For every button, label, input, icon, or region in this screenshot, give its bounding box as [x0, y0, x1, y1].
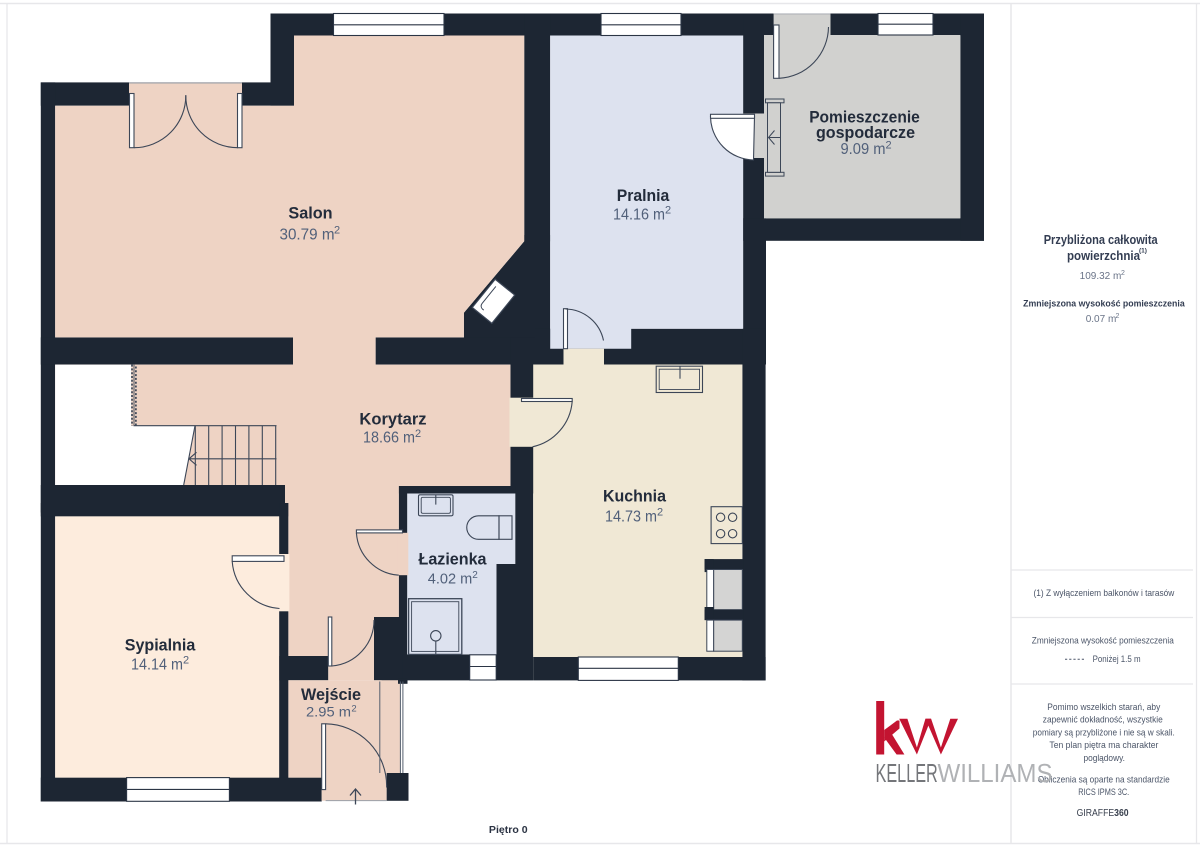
svg-text:2: 2	[1121, 270, 1125, 277]
svg-text:2: 2	[885, 139, 891, 151]
svg-text:KELLERWILLIAMS: KELLERWILLIAMS	[876, 758, 1053, 788]
svg-text:14.73 m: 14.73 m	[605, 509, 657, 526]
svg-text:(1): (1)	[1139, 248, 1147, 255]
svg-text:Obliczenia są oparte na standa: Obliczenia są oparte na standardzie	[1038, 774, 1170, 785]
svg-text:Korytarz: Korytarz	[359, 410, 426, 429]
svg-text:4.02 m: 4.02 m	[428, 572, 473, 588]
svg-text:poglądowy.: poglądowy.	[1083, 753, 1125, 764]
svg-text:2: 2	[334, 225, 340, 237]
svg-text:Łazienka: Łazienka	[419, 550, 488, 569]
svg-text:2: 2	[351, 704, 356, 715]
svg-text:Sypialnia: Sypialnia	[125, 636, 196, 655]
svg-text:Zmniejszona wysokość pomieszcz: Zmniejszona wysokość pomieszczenia	[1023, 299, 1186, 309]
svg-text:14.14 m: 14.14 m	[131, 657, 183, 674]
svg-text:Pralnia: Pralnia	[617, 186, 670, 205]
svg-text:Kuchnia: Kuchnia	[603, 487, 667, 506]
svg-text:9.09 m: 9.09 m	[841, 141, 886, 158]
svg-text:Zmniejszona wysokość pomieszcz: Zmniejszona wysokość pomieszczenia	[1032, 636, 1175, 647]
svg-text:30.79 m: 30.79 m	[280, 226, 335, 243]
svg-text:powierzchnia: powierzchnia	[1067, 249, 1141, 263]
svg-text:2: 2	[1116, 313, 1120, 320]
svg-text:(1) Z wyłączeniem balkonów i t: (1) Z wyłączeniem balkonów i tarasów	[1034, 588, 1175, 599]
svg-text:18.66 m: 18.66 m	[363, 430, 415, 447]
svg-text:2.95 m: 2.95 m	[306, 705, 351, 720]
svg-text:Piętro 0: Piętro 0	[489, 824, 528, 836]
svg-text:2: 2	[183, 655, 189, 667]
svg-text:2: 2	[665, 205, 671, 217]
svg-text:Wejście: Wejście	[301, 685, 361, 704]
svg-text:RICS IPMS 3C.: RICS IPMS 3C.	[1078, 787, 1129, 798]
svg-text:pomiary są przybliżone i nie s: pomiary są przybliżone i nie są w skali.	[1033, 727, 1175, 738]
svg-text:14.16 m: 14.16 m	[613, 207, 665, 224]
svg-text:zapewnić dokładność, wszystkie: zapewnić dokładność, wszystkie	[1043, 715, 1163, 726]
svg-text:gospodarcze: gospodarcze	[816, 123, 915, 142]
svg-text:0.07 m: 0.07 m	[1086, 314, 1117, 325]
svg-text:Przybliżona całkowita: Przybliżona całkowita	[1044, 233, 1159, 247]
svg-text:109.32 m: 109.32 m	[1080, 271, 1122, 282]
svg-text:Salon: Salon	[288, 204, 332, 223]
svg-text:2: 2	[472, 570, 478, 581]
svg-text:Pomimo wszelkich starań, aby: Pomimo wszelkich starań, aby	[1047, 702, 1160, 713]
svg-text:2: 2	[415, 428, 421, 440]
svg-text:Poniżej 1.5 m: Poniżej 1.5 m	[1093, 654, 1141, 665]
svg-text:GIRAFFE360: GIRAFFE360	[1077, 808, 1129, 819]
svg-text:2: 2	[657, 507, 663, 519]
svg-text:Ten plan piętra ma charakter: Ten plan piętra ma charakter	[1049, 740, 1158, 751]
